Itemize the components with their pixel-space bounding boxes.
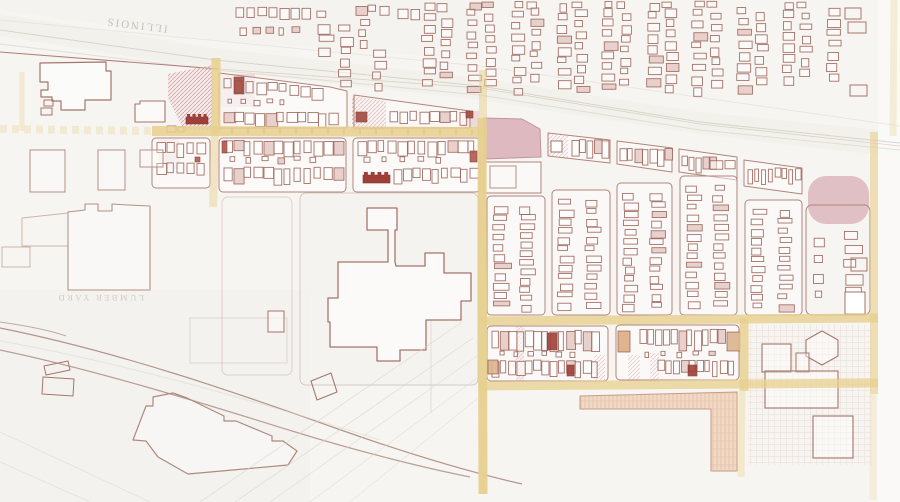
map-canvas: ILLINOISLUMBER YARD <box>0 0 900 502</box>
lumber-yard-label: LUMBER YARD <box>56 293 144 303</box>
historical-map-viewport: ILLINOISLUMBER YARD <box>0 0 900 502</box>
